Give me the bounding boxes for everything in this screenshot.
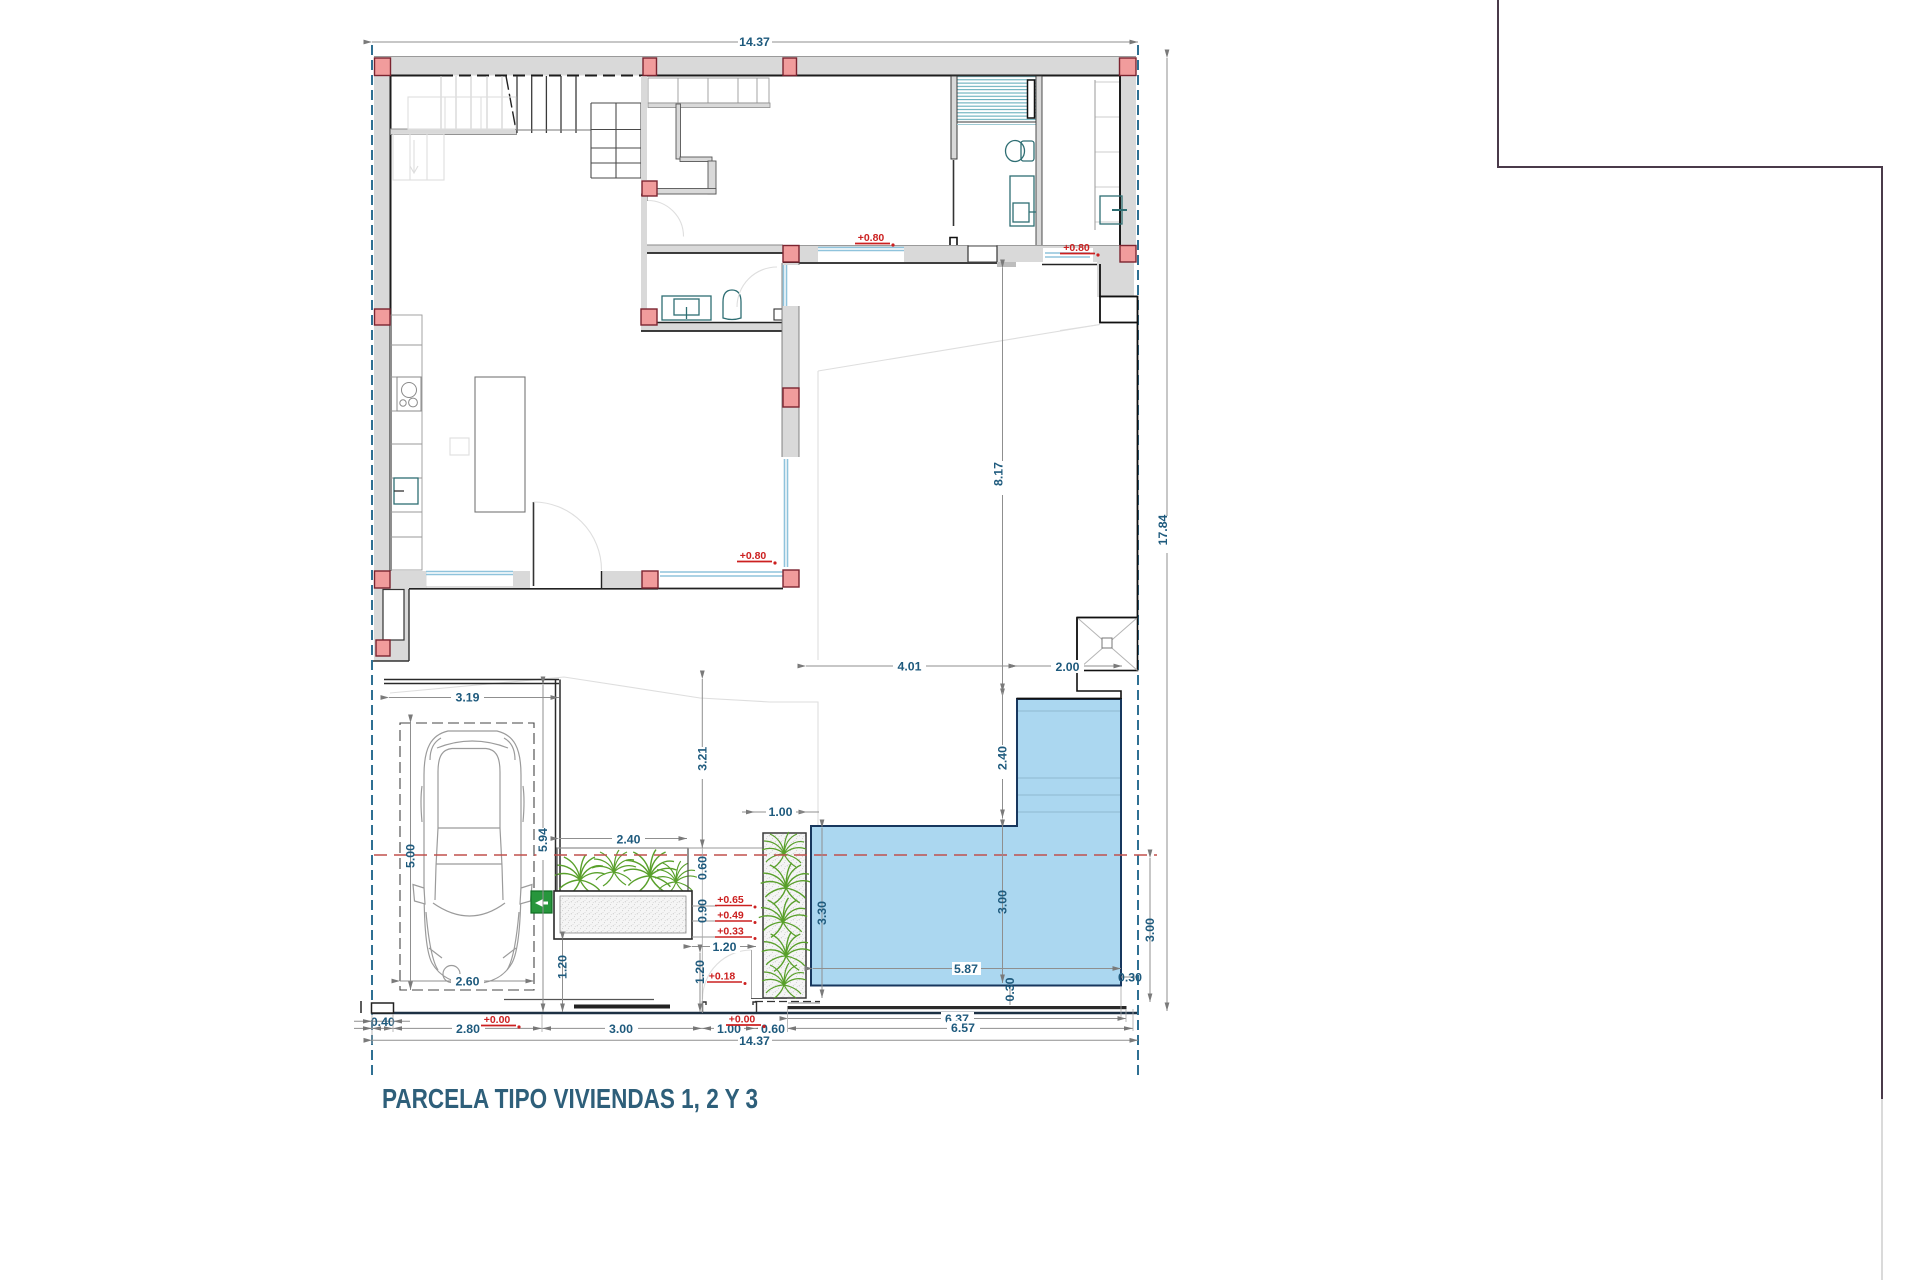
svg-text:0.40: 0.40 bbox=[371, 1015, 395, 1029]
svg-text:3.21: 3.21 bbox=[695, 747, 709, 771]
svg-text:+0.00: +0.00 bbox=[484, 1014, 511, 1026]
svg-text:3.30: 3.30 bbox=[815, 901, 829, 925]
svg-text:5.94: 5.94 bbox=[536, 828, 550, 852]
svg-text:2.00: 2.00 bbox=[1056, 660, 1080, 674]
svg-text:PARCELA TIPO VIVIENDAS 1, 2 Y: PARCELA TIPO VIVIENDAS 1, 2 Y 3 bbox=[382, 1083, 758, 1114]
svg-text:2.80: 2.80 bbox=[456, 1022, 480, 1036]
svg-text:0.60: 0.60 bbox=[695, 856, 709, 880]
svg-text:0.30: 0.30 bbox=[1003, 977, 1017, 1001]
svg-text:3.00: 3.00 bbox=[996, 890, 1010, 914]
svg-text:2.40: 2.40 bbox=[996, 746, 1010, 770]
svg-text:+0.80: +0.80 bbox=[1063, 242, 1090, 254]
svg-text:6.57: 6.57 bbox=[951, 1021, 975, 1035]
svg-text:14.37: 14.37 bbox=[739, 35, 770, 49]
svg-text:+0.80: +0.80 bbox=[740, 550, 767, 562]
svg-text:2.60: 2.60 bbox=[456, 975, 480, 989]
svg-text:17.84: 17.84 bbox=[1156, 514, 1170, 545]
svg-text:+0.80: +0.80 bbox=[858, 232, 885, 244]
svg-text:14.37: 14.37 bbox=[739, 1034, 770, 1048]
svg-text:+0.65: +0.65 bbox=[717, 894, 744, 906]
svg-text:+0.49: +0.49 bbox=[717, 910, 744, 922]
svg-text:+0.18: +0.18 bbox=[709, 971, 736, 983]
svg-text:5.87: 5.87 bbox=[954, 962, 978, 976]
svg-text:5.00: 5.00 bbox=[404, 844, 418, 868]
svg-text:0.30: 0.30 bbox=[1118, 971, 1142, 985]
svg-text:8.17: 8.17 bbox=[992, 462, 1006, 486]
svg-text:1.20: 1.20 bbox=[693, 960, 707, 984]
svg-text:1.00: 1.00 bbox=[769, 805, 793, 819]
svg-text:4.01: 4.01 bbox=[898, 660, 922, 674]
svg-text:2.40: 2.40 bbox=[617, 833, 641, 847]
svg-text:1.20: 1.20 bbox=[556, 955, 570, 979]
svg-text:0.90: 0.90 bbox=[695, 899, 709, 923]
svg-text:3.19: 3.19 bbox=[456, 691, 480, 705]
svg-text:+0.00: +0.00 bbox=[729, 1014, 756, 1026]
svg-text:3.00: 3.00 bbox=[1143, 918, 1157, 942]
svg-text:+0.33: +0.33 bbox=[717, 926, 744, 938]
svg-text:3.00: 3.00 bbox=[609, 1022, 633, 1036]
svg-text:1.20: 1.20 bbox=[713, 940, 737, 954]
